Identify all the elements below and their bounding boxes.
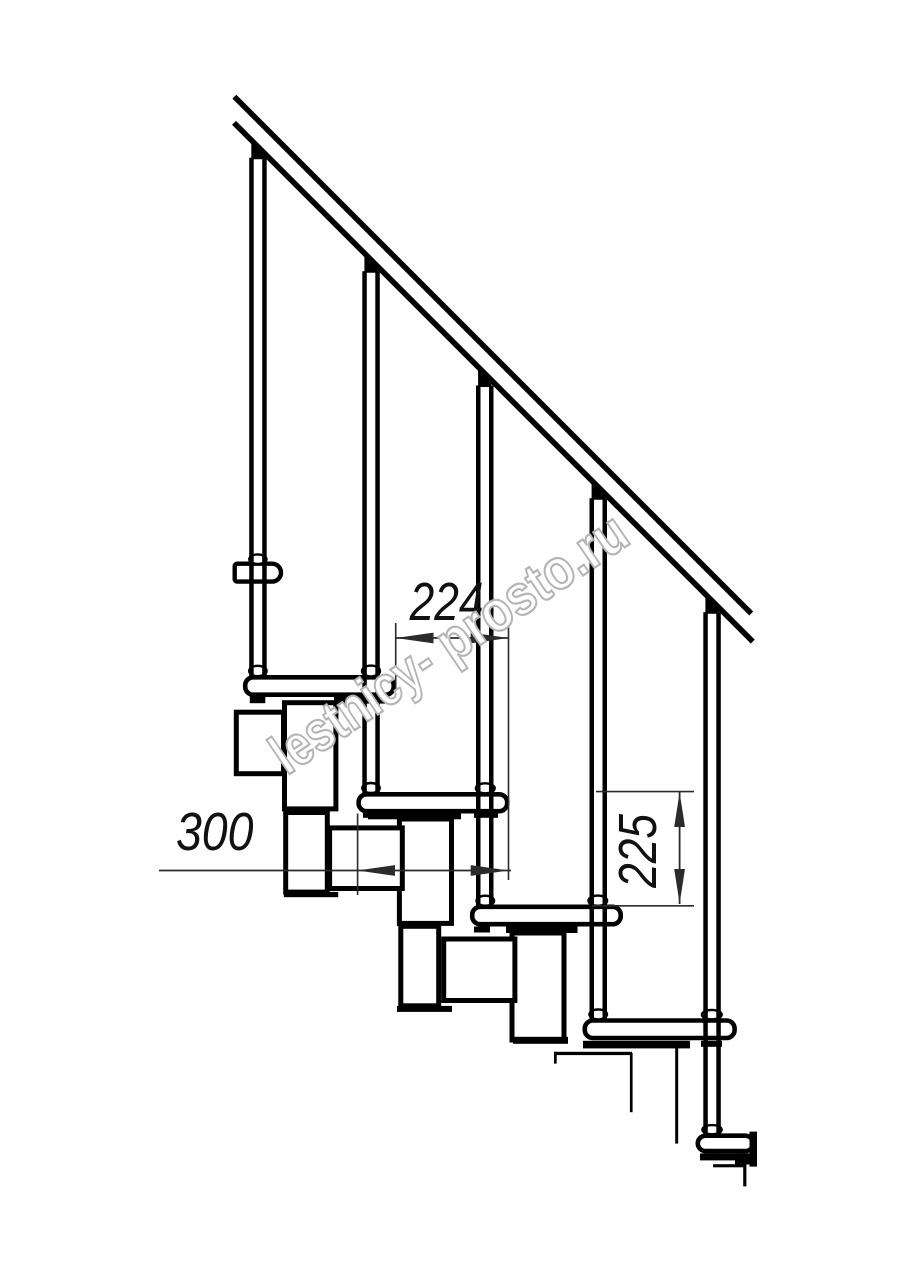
svg-text:300: 300 — [176, 801, 253, 862]
svg-text:225: 225 — [608, 814, 668, 889]
